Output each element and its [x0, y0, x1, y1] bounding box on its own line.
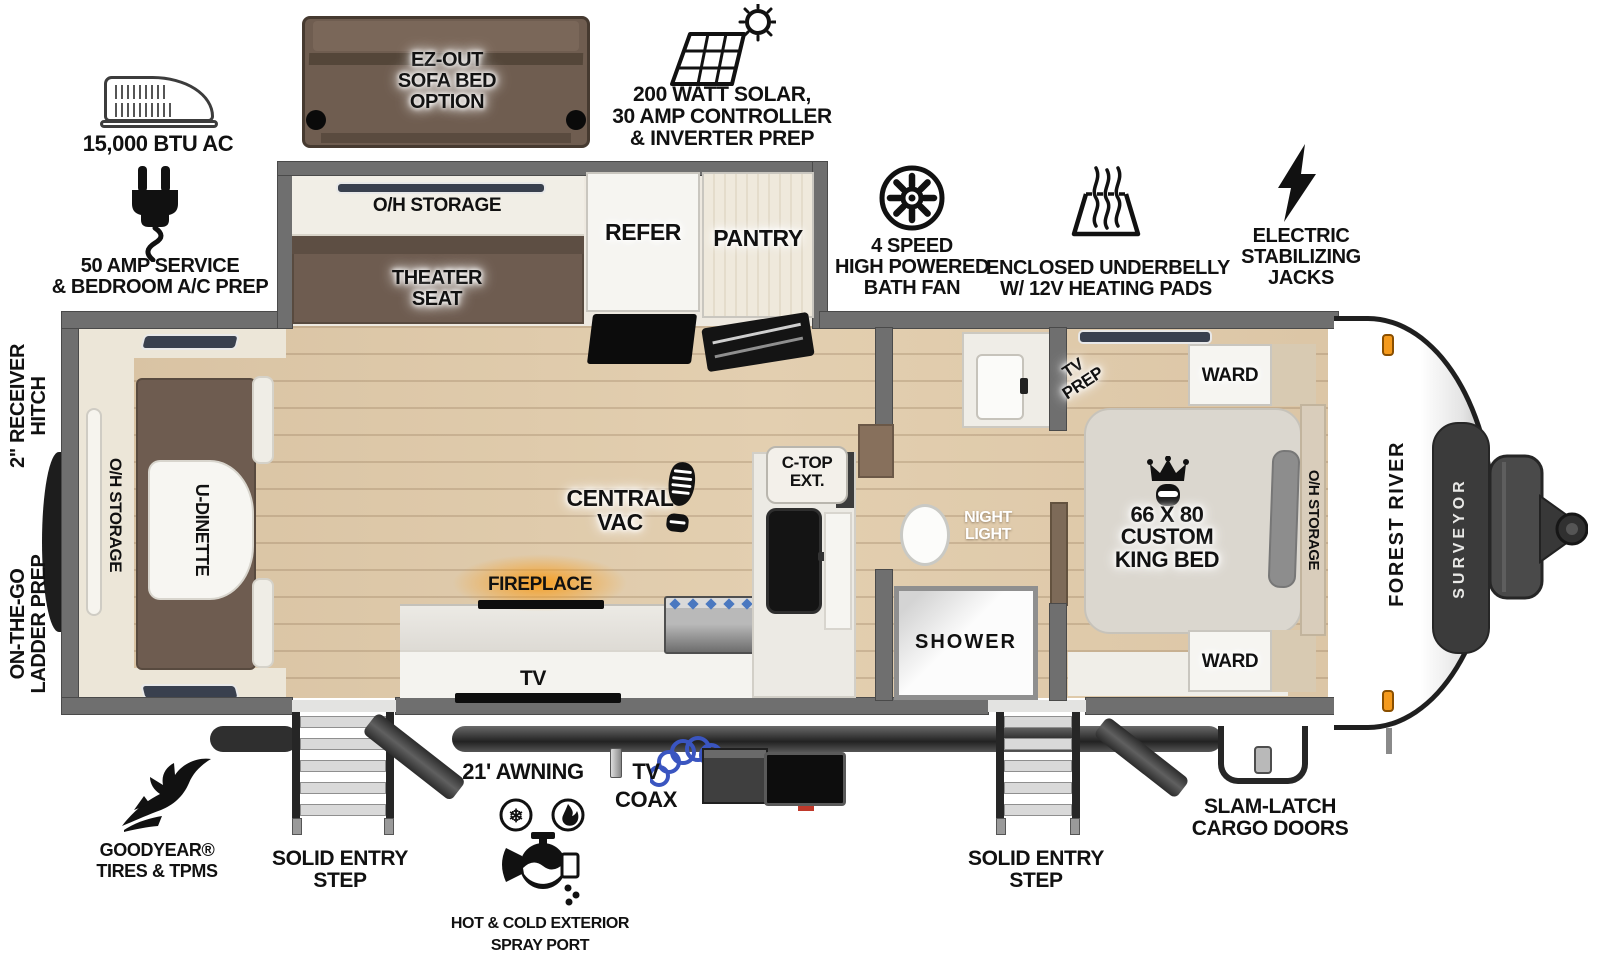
solar-panel-icon: [670, 4, 776, 90]
wall-bottom-rear: [62, 698, 292, 714]
bed-wall-bottom: [1050, 604, 1066, 700]
dinette-armrest-bottom: [252, 578, 274, 668]
step-rail: [292, 712, 300, 820]
forest-river-brand: FOREST RIVER: [1387, 409, 1409, 639]
wardrobe-top-side: [1272, 344, 1316, 406]
step-tread: [1004, 738, 1072, 750]
outside-kitchen-box: [702, 748, 768, 804]
front-door-threshold: [988, 700, 1086, 712]
range-stove: [664, 596, 756, 654]
ez-sofa-back: [313, 21, 579, 51]
u-dinette-label: U-DINETTE: [191, 460, 211, 600]
wall-left-rear: [62, 312, 78, 714]
bath-sink: [976, 354, 1024, 420]
rear-bumper: [210, 726, 298, 752]
rv-floorplan-diagram: O/H STORAGE U-DINETTE O/H STORAGE THEATE…: [0, 0, 1600, 956]
burner: [687, 598, 698, 609]
tongue-jack-post: [1386, 728, 1392, 754]
wall-top-main: [820, 312, 1338, 328]
rear-door-threshold: [292, 700, 396, 712]
wall-slide-left: [278, 162, 292, 328]
wall-top-rear: [62, 312, 290, 328]
underbelly-label: ENCLOSED UNDERBELLY W/ 12V HEATING PADS: [986, 258, 1226, 300]
step-tread: [1004, 716, 1072, 728]
step-rail: [1072, 712, 1080, 820]
kitchen-tv-unit: [455, 693, 621, 703]
burner: [741, 598, 752, 609]
step-tread: [1004, 804, 1072, 816]
shower-label: SHOWER: [896, 632, 1036, 653]
fireplace-label: FIREPLACE: [440, 575, 640, 595]
bed-oh-storage-label: O/H STORAGE: [1305, 445, 1321, 595]
wardrobe-top-label: WARD: [1188, 366, 1272, 386]
step-tread: [1004, 760, 1072, 772]
ez-sofa-pin-left: [306, 110, 326, 130]
step-tread: [1004, 782, 1072, 794]
step-tread: [300, 760, 386, 772]
kitchen-sink: [766, 508, 822, 614]
amp50-label: 50 AMP SERVICE & BEDROOM A/C PREP: [35, 256, 285, 298]
burner: [669, 598, 680, 609]
ac-vents: [115, 103, 173, 117]
ladder-prep-label: ON-THE-GO LADDER PREP: [8, 539, 52, 709]
pantry-label: PANTRY: [698, 226, 818, 250]
rear-top-window: [140, 334, 240, 350]
tv-under-refer: [587, 314, 697, 364]
spray-port-icon: ❄: [496, 798, 588, 908]
bootprint-icon: [656, 458, 704, 540]
ez-sofa-pin-right: [566, 110, 586, 130]
king-crown-icon: [1146, 456, 1190, 508]
ac-vents: [115, 85, 169, 99]
surveyor-brand: SURVEYOR: [1452, 438, 1470, 638]
slam-latch-label: SLAM-LATCH CARGO DOORS: [1160, 796, 1380, 840]
step-foot: [292, 818, 302, 835]
burner: [705, 598, 716, 609]
ez-sofa-base: [321, 133, 571, 143]
bath-wall-left-bottom: [876, 570, 892, 700]
burner: [723, 598, 734, 609]
bath-faucet: [1020, 378, 1028, 394]
wall-bottom-front: [1086, 698, 1338, 714]
cargo-door-latch: [1254, 746, 1272, 774]
theater-seat-backrest: [292, 236, 584, 254]
dishwasher: [824, 512, 852, 630]
step-tread: [300, 782, 386, 794]
wardrobe-bottom-label: WARD: [1188, 652, 1272, 672]
goodyear-wingfoot-icon: [116, 752, 214, 836]
heated-underbelly-icon: [1060, 158, 1152, 238]
ac-label: 15,000 BTU AC: [58, 132, 258, 155]
tongue-hitch: [1488, 450, 1588, 606]
slide-window: [336, 182, 546, 194]
outside-kitchen-top: [704, 750, 766, 758]
goodyear-label: GOODYEAR® TIRES & TPMS: [57, 840, 257, 881]
ez-sofa-label: EZ-OUT SOFA BED OPTION: [367, 50, 527, 113]
snowflake-icon: ❄: [508, 806, 523, 826]
jacks-label: ELECTRIC STABILIZING JACKS: [1201, 226, 1401, 289]
step-tread: [300, 804, 386, 816]
wardrobe-bottom-side: [1272, 630, 1316, 692]
solar-label: 200 WATT SOLAR, 30 AMP CONTROLLER & INVE…: [602, 84, 842, 150]
king-bed-label: 66 X 80 CUSTOM KING BED: [1067, 504, 1267, 571]
outside-tv: [764, 752, 846, 806]
theater-seat-label: THEATER SEAT: [357, 268, 517, 310]
marker-light-top: [1382, 334, 1394, 356]
bath-accent-left: [858, 424, 894, 478]
lightning-bolt-icon: [1278, 144, 1324, 222]
dinette-armrest-top: [252, 376, 274, 464]
kitchen-tv-label: TV: [473, 668, 593, 690]
ctop-ext-label: C-TOP EXT.: [766, 454, 848, 490]
bath-wall-left-top: [876, 328, 892, 428]
rear-wall-window: [86, 408, 102, 616]
marker-light-bottom: [1382, 690, 1394, 712]
stove-burners: [671, 600, 751, 610]
step-foot: [1070, 818, 1080, 835]
tv-coax-label: TV COAX: [586, 758, 706, 813]
rear-entry-step-label: SOLID ENTRY STEP: [240, 848, 440, 892]
ac-unit-icon: [104, 76, 214, 122]
fireplace-unit: [478, 600, 604, 609]
step-foot: [384, 818, 394, 835]
outside-tv-light: [798, 806, 814, 811]
step-rail: [996, 712, 1004, 820]
front-entry-step-label: SOLID ENTRY STEP: [936, 848, 1136, 892]
ac-base: [100, 120, 218, 128]
spray-port-label: HOT & COLD EXTERIOR SPRAY PORT: [430, 913, 650, 956]
bed-accent-wall: [1050, 502, 1068, 606]
power-plug-icon: [128, 166, 182, 262]
night-light-label: NIGHT LIGHT: [928, 510, 1048, 544]
refer-label: REFER: [583, 220, 703, 244]
front-entry-steps: [996, 712, 1080, 836]
bath-fan-icon: [878, 164, 946, 232]
step-foot: [996, 818, 1006, 835]
rear-oh-storage-label: O/H STORAGE: [104, 435, 124, 595]
bed-pillow: [1268, 450, 1301, 589]
slide-oh-storage-label: O/H STORAGE: [357, 196, 517, 216]
receiver-hitch-label: 2" RECEIVER HITCH: [8, 331, 52, 481]
